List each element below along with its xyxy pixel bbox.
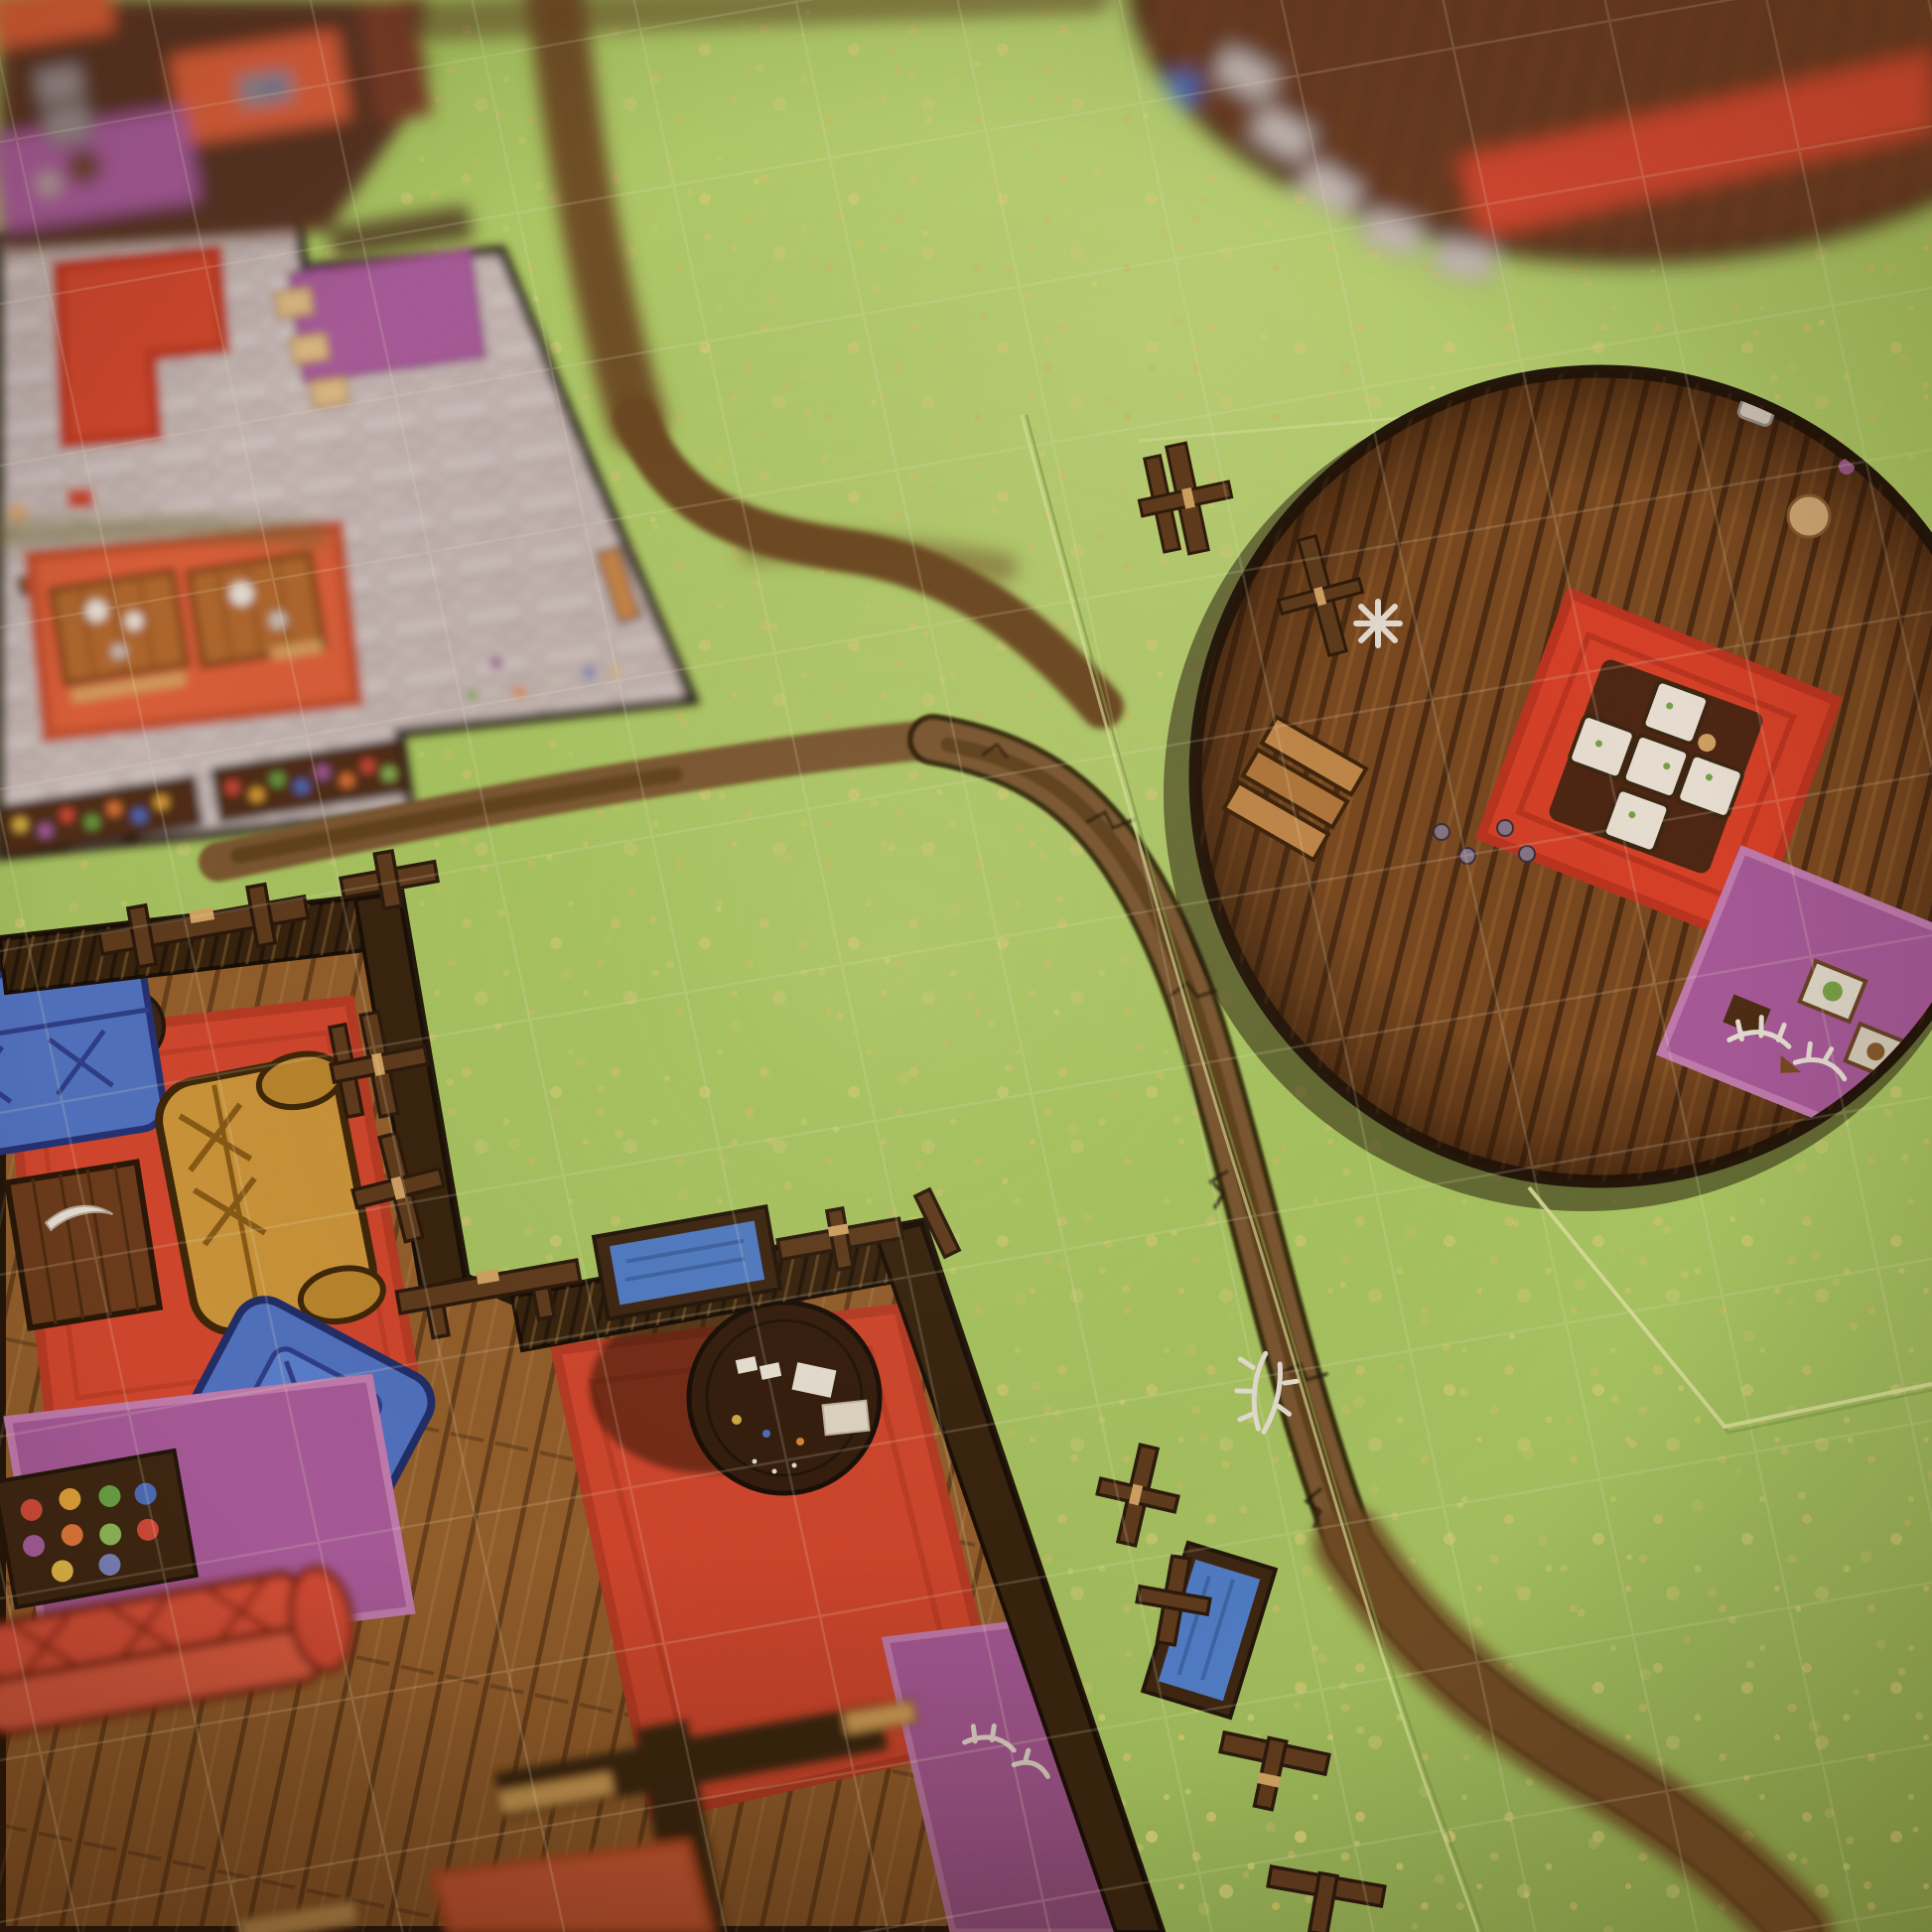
board-photo xyxy=(0,0,1932,1932)
film-grain xyxy=(0,0,1932,1932)
board-photo-svg xyxy=(0,0,1932,1932)
